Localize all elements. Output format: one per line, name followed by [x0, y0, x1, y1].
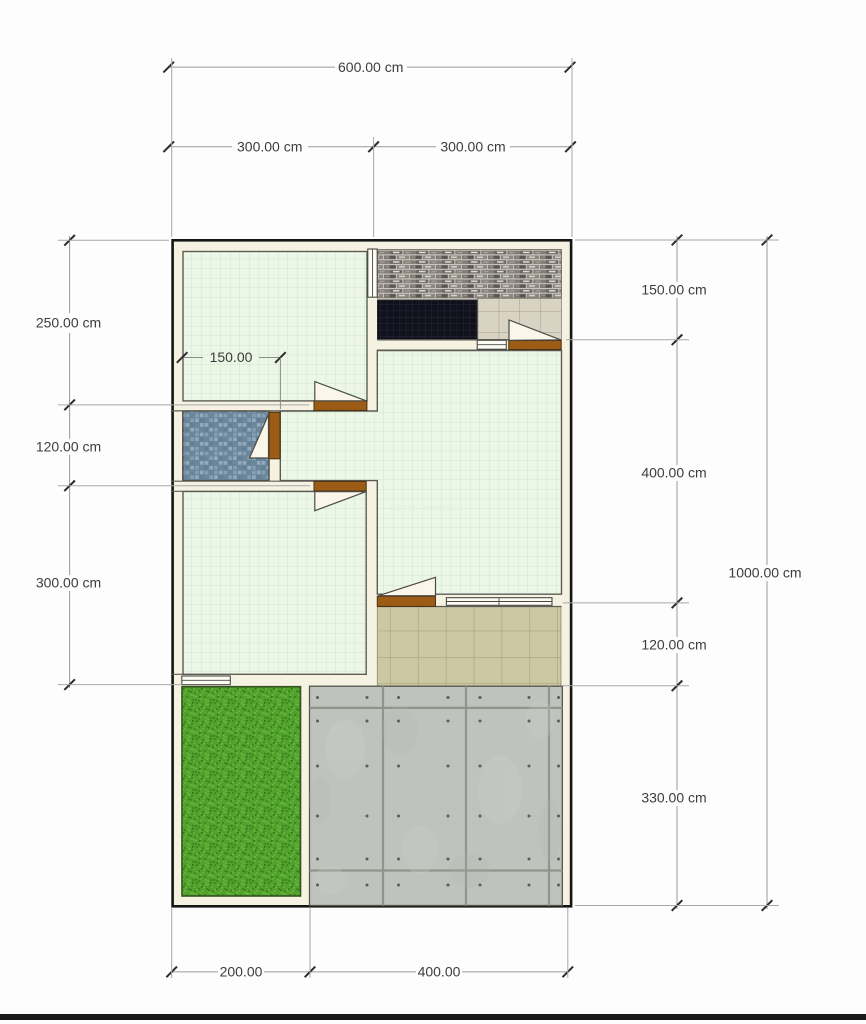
svg-text:330.00 cm: 330.00 cm	[641, 790, 706, 806]
svg-text:150.00: 150.00	[210, 349, 253, 365]
svg-text:400.00 cm: 400.00 cm	[641, 465, 706, 481]
svg-text:rumah minimalis: rumah minimalis	[390, 503, 463, 514]
svg-text:120.00 cm: 120.00 cm	[36, 438, 101, 454]
svg-text:400.00: 400.00	[418, 964, 461, 980]
svg-text:300.00 cm: 300.00 cm	[36, 575, 101, 591]
svg-text:1000.00 cm: 1000.00 cm	[728, 565, 801, 581]
svg-text:250.00 cm: 250.00 cm	[36, 315, 101, 331]
svg-text:300.00 cm: 300.00 cm	[440, 139, 505, 155]
svg-text:150.00 cm: 150.00 cm	[641, 282, 706, 298]
svg-text:120.00 cm: 120.00 cm	[641, 637, 706, 653]
svg-text:300.00 cm: 300.00 cm	[237, 139, 302, 155]
svg-text:600.00 cm: 600.00 cm	[338, 59, 403, 75]
svg-text:200.00: 200.00	[220, 964, 263, 980]
